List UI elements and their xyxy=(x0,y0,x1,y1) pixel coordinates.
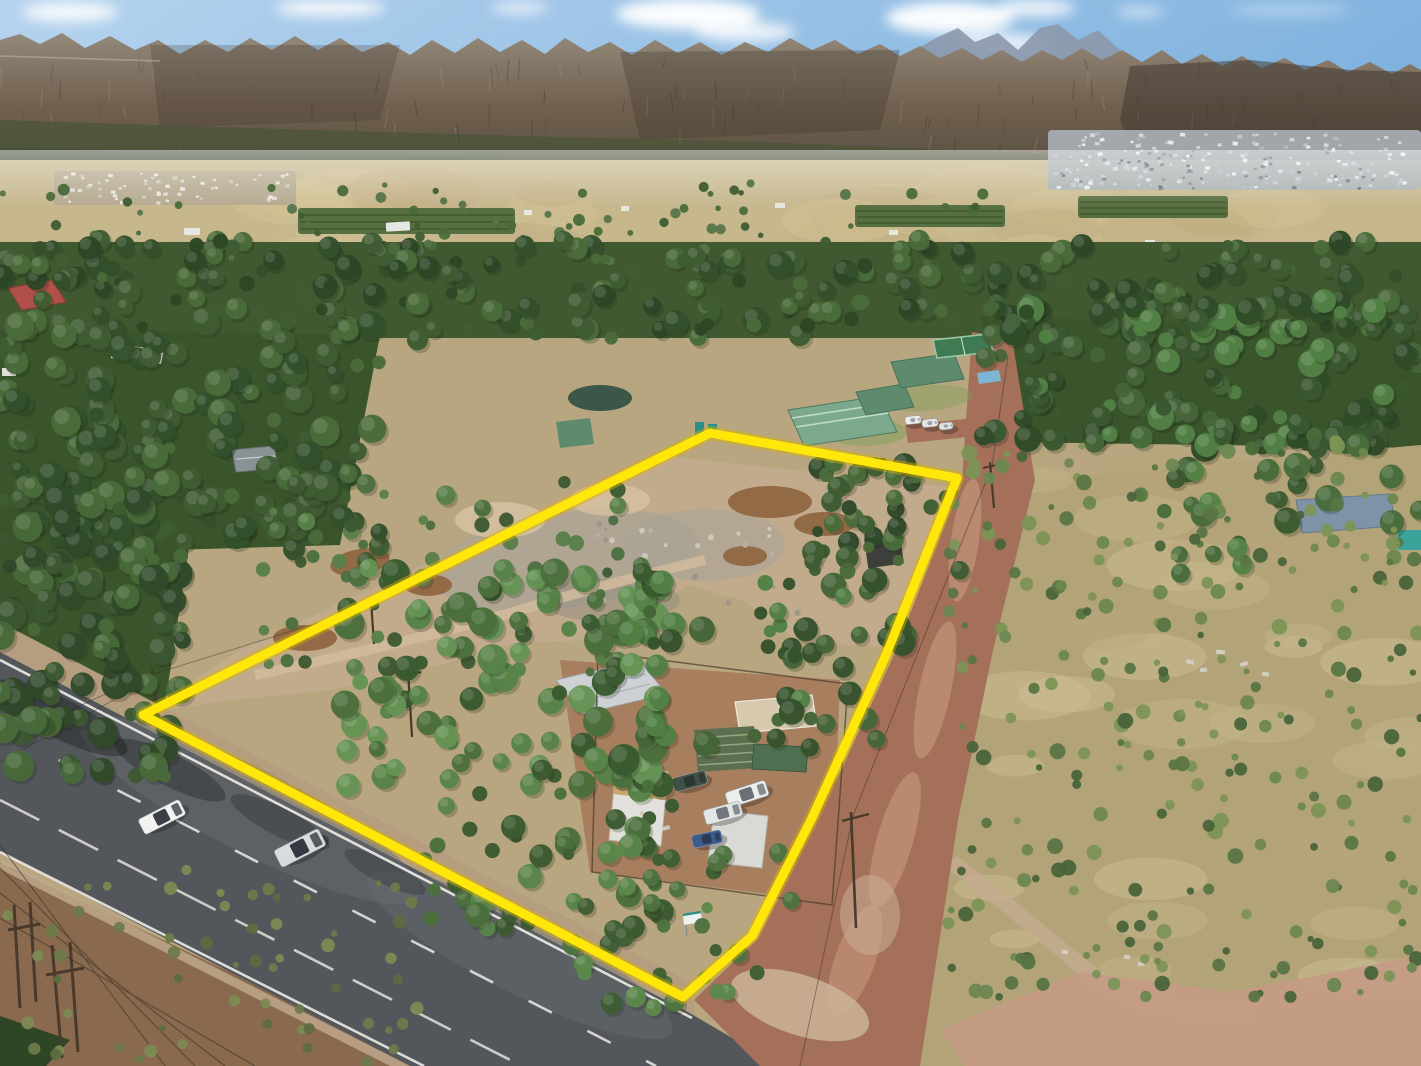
left-dirt-tufts xyxy=(332,984,341,993)
forest-left-road-highlight xyxy=(25,547,36,558)
white-building xyxy=(524,210,532,215)
forest-left-deep-highlight xyxy=(313,418,328,433)
property-central-trees-highlight xyxy=(539,593,550,604)
rubble-row xyxy=(770,552,775,557)
scrub-bushes xyxy=(1344,836,1358,850)
scrub-bushes xyxy=(1309,791,1319,801)
scrub-bushes xyxy=(948,588,959,599)
forest-right-deep-highlight xyxy=(978,349,988,359)
forest-left-deep-highlight xyxy=(289,353,299,363)
left-dirt-tufts xyxy=(21,1016,34,1029)
property-upper-strip-highlight xyxy=(476,501,485,510)
scrub-bushes xyxy=(1076,475,1092,491)
cloud xyxy=(1230,3,1350,17)
scrub-bushes xyxy=(1228,848,1244,864)
left-dirt-tufts xyxy=(45,924,59,938)
valley-trees xyxy=(137,210,143,216)
forest-left-deep-highlight xyxy=(141,348,152,359)
scrub-bushes xyxy=(1345,521,1356,532)
left-dirt-tufts xyxy=(250,955,262,967)
forest-right-deep-highlight xyxy=(1242,416,1251,425)
scrub-bushes xyxy=(1295,766,1308,779)
forest-right-deep-highlight xyxy=(1400,305,1409,314)
scrub-bushes xyxy=(1117,921,1129,933)
forest-band xyxy=(851,295,867,311)
scrub-bushes xyxy=(1154,660,1160,666)
junction-gravel xyxy=(840,875,900,955)
scrub-bushes xyxy=(1175,756,1190,771)
scrub-bushes xyxy=(1396,748,1406,758)
forest-left-deep-highlight xyxy=(274,331,286,343)
scrub-bushes xyxy=(1209,729,1218,738)
property-northeast-trees-highlight xyxy=(887,491,895,499)
forest-right-deep-highlight xyxy=(1338,319,1347,328)
property-central-trees-highlight xyxy=(361,560,370,569)
forest-left-deep-highlight xyxy=(144,444,157,457)
property-northeast-trees-highlight xyxy=(859,517,868,526)
property-east-trees xyxy=(783,578,795,590)
scrub-bushes xyxy=(1048,504,1054,510)
forest-band-highlight xyxy=(1357,233,1367,243)
roadside-south-trees-highlight xyxy=(616,928,626,938)
property-east-trees-highlight xyxy=(796,619,808,631)
scrub-bushes xyxy=(1128,883,1142,897)
property-upper-strip xyxy=(298,655,311,668)
forest-right-deep-highlight xyxy=(1375,386,1386,397)
forest-left-deep xyxy=(372,356,386,370)
forest-band-highlight xyxy=(901,300,912,311)
forest-band xyxy=(461,324,474,337)
scrub-bushes xyxy=(1407,963,1417,973)
property-east-trees-highlight xyxy=(648,656,659,667)
forest-left-road-highlight xyxy=(142,755,156,769)
valley-haze xyxy=(0,150,1421,208)
scrub-bushes xyxy=(1047,838,1063,854)
property-upper-strip xyxy=(295,556,307,568)
property-east-trees xyxy=(787,649,802,664)
forest-band-highlight xyxy=(118,300,126,308)
scrub-bushes xyxy=(967,741,979,753)
cloud xyxy=(1116,6,1164,18)
scrub-bushes xyxy=(947,963,956,972)
valley-trees xyxy=(415,232,425,242)
rubble-row xyxy=(664,543,668,547)
mountain-shadow-left xyxy=(150,45,400,128)
soil-heap xyxy=(728,486,812,518)
left-dirt-tufts xyxy=(73,906,84,917)
property-upper-strip-highlight xyxy=(380,658,390,668)
right-pine-cluster xyxy=(1157,504,1172,519)
forest-left-deep-highlight xyxy=(194,309,208,323)
scrub-bushes xyxy=(1382,580,1388,586)
left-dirt-tufts xyxy=(303,1043,313,1053)
scrub-bushes xyxy=(1157,522,1165,530)
valley-trees xyxy=(0,190,6,196)
forest-band-highlight xyxy=(1156,283,1167,294)
forest-left-deep-highlight xyxy=(12,491,21,500)
rubble-row xyxy=(603,537,608,542)
forest-right-deep-highlight xyxy=(1197,435,1209,447)
forest-band-highlight xyxy=(886,272,897,283)
valley-trees xyxy=(680,204,689,213)
scrub-bushes xyxy=(1290,925,1303,938)
forest-left-road-highlight xyxy=(154,612,166,624)
rubble-row xyxy=(604,528,607,531)
forest-left-deep-highlight xyxy=(5,390,17,402)
white-building xyxy=(889,230,898,235)
right-pine-cluster-highlight xyxy=(1207,547,1215,555)
roadside-south-trees-highlight xyxy=(645,895,654,904)
left-dirt-tufts xyxy=(200,936,213,949)
forest-left-deep-highlight xyxy=(283,503,296,516)
property-northeast-trees xyxy=(842,500,857,515)
property-south-trees-highlight xyxy=(440,798,449,807)
scrub-bushes xyxy=(1125,937,1135,947)
valley-trees xyxy=(51,220,61,230)
scrub-bushes xyxy=(972,588,978,594)
forest-left-deep xyxy=(224,488,239,503)
forest-right-deep-highlight xyxy=(1173,303,1182,312)
property-south-trees-highlight xyxy=(532,846,544,858)
forest-right-deep-highlight xyxy=(1315,291,1327,303)
town-buildings xyxy=(1398,141,1402,144)
property-south-trees-highlight xyxy=(557,837,566,846)
forest-band-highlight xyxy=(989,263,1001,275)
forest-left-road-highlight xyxy=(122,673,133,684)
scrub-bushes xyxy=(1348,820,1355,827)
scrub-bushes xyxy=(957,661,969,673)
forest-right-deep-highlight xyxy=(1092,407,1102,417)
property-northeast-trees-highlight xyxy=(804,542,816,554)
left-dirt-tufts xyxy=(262,1019,272,1029)
roadside-south-trees xyxy=(710,984,726,1000)
scrub-bushes xyxy=(1092,944,1100,952)
left-dirt-tufts xyxy=(63,1009,72,1018)
scrub-bushes xyxy=(1289,566,1297,574)
property-upper-strip xyxy=(568,535,584,551)
scrub-bushes xyxy=(1312,938,1323,949)
forest-band-highlight xyxy=(556,232,566,242)
forest-band xyxy=(54,252,69,267)
forest-left-deep-highlight xyxy=(267,374,277,384)
property-east-trees xyxy=(754,607,767,620)
forest-right-deep-highlight xyxy=(976,428,985,437)
forest-right-deep-highlight xyxy=(1189,311,1200,322)
scrub-bushes xyxy=(1331,662,1346,677)
scrub-bushes xyxy=(1269,771,1281,783)
scrub-bushes xyxy=(1357,781,1364,788)
forest-left-deep-highlight xyxy=(196,395,206,405)
left-dirt-tufts xyxy=(385,953,396,964)
forest-left-deep-highlight xyxy=(94,426,106,438)
left-dirt-tufts xyxy=(32,950,43,961)
scrub-bushes xyxy=(1187,887,1194,894)
forest-left-deep-highlight xyxy=(333,508,345,520)
property-central-trees-highlight xyxy=(512,644,522,654)
forest-right-deep xyxy=(1090,347,1105,362)
scrub-bushes xyxy=(958,907,973,922)
forest-band-highlight xyxy=(795,291,804,300)
property-central-trees-highlight xyxy=(543,733,552,742)
scrub-bushes xyxy=(1124,537,1133,546)
forest-band-highlight xyxy=(568,294,580,306)
scrub-bushes xyxy=(968,655,977,664)
forest-left-road-highlight xyxy=(78,571,92,585)
roadside-south-trees-highlight xyxy=(671,882,679,890)
scrub-bushes xyxy=(1078,747,1090,759)
forest-band-highlight xyxy=(408,294,419,305)
property-east-trees-highlight xyxy=(864,569,877,582)
forest-band xyxy=(446,287,458,299)
scrub-bushes xyxy=(1259,720,1271,732)
scrub-bushes xyxy=(1027,750,1035,758)
scrub-bushes xyxy=(1403,815,1412,824)
forest-band-highlight xyxy=(1226,264,1237,275)
property-central-trees-highlight xyxy=(339,741,350,752)
property-northeast-trees-highlight xyxy=(823,493,833,503)
rubble-row xyxy=(692,574,698,580)
right-pine-cluster-highlight xyxy=(1201,494,1212,505)
property-south-trees xyxy=(554,787,566,799)
forest-left-road-highlight xyxy=(127,490,140,503)
forest-band-highlight xyxy=(610,273,619,282)
forest-band-highlight xyxy=(262,321,273,332)
forest-right-deep-highlight xyxy=(1165,391,1174,400)
scrub-bushes xyxy=(1270,971,1278,979)
property-upper-strip xyxy=(281,654,294,667)
forest-left-deep-highlight xyxy=(314,475,328,489)
scrub-bushes xyxy=(1308,437,1320,449)
scrub-bushes xyxy=(1241,909,1251,919)
scrub-bushes xyxy=(1112,577,1123,588)
forest-band-highlight xyxy=(654,322,663,331)
roadside-south-trees-highlight xyxy=(579,899,587,907)
scrub-bushes xyxy=(1094,807,1108,821)
scrub-bushes xyxy=(969,984,983,998)
forest-left-deep-highlight xyxy=(317,344,329,356)
forest-band-highlight xyxy=(894,242,903,251)
scrub-bushes xyxy=(1310,843,1318,851)
forest-left-road-highlight xyxy=(63,763,74,774)
valley-trees xyxy=(729,185,739,195)
forest-band xyxy=(97,272,108,283)
roadside-south-trees-highlight xyxy=(710,854,719,863)
property-east-trees-highlight xyxy=(651,689,661,699)
property-east-trees-highlight xyxy=(781,701,794,714)
forest-right-deep xyxy=(1175,336,1188,349)
property-south-trees xyxy=(428,883,441,896)
forest-right-deep-highlight xyxy=(984,326,995,337)
property-east-trees-highlight xyxy=(663,614,675,626)
forest-left-deep-highlight xyxy=(269,433,278,442)
scrub-bushes xyxy=(1386,559,1393,566)
property-central-trees-highlight xyxy=(374,766,387,779)
property-central-trees-highlight xyxy=(495,561,505,571)
left-dirt-tufts xyxy=(261,998,271,1008)
property-central-trees-highlight xyxy=(620,588,631,599)
scrub-bushes xyxy=(1195,612,1208,625)
forest-left-deep-highlight xyxy=(46,358,57,369)
forest-band-highlight xyxy=(1042,252,1053,263)
property-upper-strip-highlight xyxy=(348,660,356,668)
scrub-bushes xyxy=(1387,900,1401,914)
forest-left-deep-highlight xyxy=(372,525,381,534)
scrub-bushes xyxy=(1337,626,1351,640)
town-buildings xyxy=(1273,133,1277,136)
property-upper-strip-highlight xyxy=(270,523,279,532)
scrub-bushes xyxy=(1284,715,1294,725)
scrub-bushes xyxy=(1410,669,1416,675)
property-central-trees-highlight xyxy=(419,713,431,725)
forest-band-highlight xyxy=(666,312,679,325)
forest-band xyxy=(746,318,761,333)
forest-band-highlight xyxy=(1019,265,1031,277)
roadside-south-trees-highlight xyxy=(784,893,793,902)
forest-right-deep-highlight xyxy=(1016,411,1024,419)
forest-left-road-highlight xyxy=(117,586,130,599)
town-buildings xyxy=(1137,138,1141,141)
forest-band xyxy=(213,234,228,249)
property-northeast-trees xyxy=(893,555,904,566)
forest-right-deep-highlight xyxy=(1395,345,1407,357)
town-buildings xyxy=(1303,143,1307,146)
forest-band-highlight xyxy=(389,261,399,271)
forest-band-highlight xyxy=(911,231,921,241)
property-south-trees-highlight xyxy=(599,843,610,854)
forest-left-deep-highlight xyxy=(359,313,373,327)
scrub-bushes xyxy=(1197,632,1204,639)
right-pine-cluster-highlight xyxy=(1187,463,1197,473)
forest-band-highlight xyxy=(1199,266,1211,278)
property-south-trees-highlight xyxy=(621,836,633,848)
forest-left-deep-highlight xyxy=(220,413,233,426)
valley-trees xyxy=(670,208,680,218)
scrub-bushes xyxy=(1140,954,1150,964)
left-dirt-tufts xyxy=(304,1023,315,1034)
forest-left-deep-highlight xyxy=(8,314,23,329)
roadside-south-trees xyxy=(710,944,722,956)
scrub-bushes xyxy=(1140,991,1151,1002)
property-northeast-trees-highlight xyxy=(806,554,815,563)
forest-left-deep-highlight xyxy=(90,327,102,339)
forest-band xyxy=(256,265,268,277)
forest-right-deep-highlight xyxy=(1158,350,1170,362)
forest-left-road-highlight xyxy=(142,567,157,582)
property-upper-strip xyxy=(474,517,489,532)
property-east-trees-highlight xyxy=(818,636,827,645)
scrub-bushes xyxy=(1069,886,1079,896)
forest-right-deep xyxy=(983,302,997,316)
forest-left-road-highlight xyxy=(92,760,105,773)
property-upper-strip xyxy=(608,515,618,525)
forest-band-highlight xyxy=(1089,280,1099,290)
forest-right-deep-highlight xyxy=(1353,312,1361,320)
forest-left-deep-highlight xyxy=(216,440,225,449)
scrub-bushes xyxy=(949,539,960,550)
scrub-bushes xyxy=(1394,644,1407,657)
aerial-photo-canvas xyxy=(0,0,1421,1066)
forest-band-highlight xyxy=(1254,254,1262,262)
scrub-bushes xyxy=(1064,458,1073,467)
forest-band-highlight xyxy=(265,252,275,262)
scrub-bushes xyxy=(986,858,997,869)
scrub-bushes xyxy=(1248,991,1260,1003)
forest-band xyxy=(793,276,808,291)
forest-right-deep xyxy=(1334,306,1347,319)
valley-trees xyxy=(594,227,603,236)
forest-left-deep-highlight xyxy=(152,337,161,346)
left-dirt-tufts xyxy=(393,975,403,985)
forest-band xyxy=(1059,275,1072,288)
forest-left-road-highlight xyxy=(176,633,184,641)
scrub-bushes xyxy=(1153,585,1167,599)
scrub-bushes xyxy=(1298,638,1307,647)
scrub-bushes xyxy=(1277,961,1291,975)
scrub-bushes xyxy=(1045,677,1058,690)
scrub-bushes xyxy=(1177,738,1185,746)
property-central-trees-highlight xyxy=(480,646,495,661)
scrub-bushes xyxy=(976,750,992,766)
scrub-bushes xyxy=(1059,511,1073,525)
forest-left-deep-highlight xyxy=(155,471,169,485)
forest-right-deep-highlight xyxy=(1215,419,1225,429)
property-upper-strip-highlight xyxy=(611,498,619,506)
left-dirt-tufts xyxy=(165,933,175,943)
pond xyxy=(568,385,632,411)
property-south-trees-highlight xyxy=(600,871,610,881)
forest-left-road-highlight xyxy=(38,591,49,602)
scrub-bushes xyxy=(1360,553,1369,562)
property-central-trees-highlight xyxy=(449,594,464,609)
left-dirt-tufts xyxy=(331,930,337,936)
valley-trees xyxy=(747,179,755,187)
forest-left-deep-highlight xyxy=(198,495,208,505)
forest-left-deep-highlight xyxy=(207,372,220,385)
roadside-south-trees xyxy=(613,846,624,857)
valley-trees xyxy=(345,247,351,253)
town-buildings xyxy=(1100,138,1105,142)
valley-trees xyxy=(706,223,716,233)
property-central-trees-highlight xyxy=(622,655,634,667)
forest-left-deep-highlight xyxy=(279,468,291,480)
property-central-trees-highlight xyxy=(513,735,523,745)
scrub-bushes xyxy=(1350,586,1357,593)
forest-right-deep-highlight xyxy=(1146,300,1156,310)
forest-band-highlight xyxy=(116,237,126,247)
forest-band-highlight xyxy=(1271,259,1282,270)
forest-left-deep-highlight xyxy=(79,431,94,446)
scrub-bushes xyxy=(1362,492,1369,499)
town-buildings xyxy=(1260,146,1264,149)
property-south-trees-highlight xyxy=(442,771,452,781)
property-east-trees xyxy=(757,575,773,591)
forest-band xyxy=(239,276,255,292)
forest-right-deep-highlight xyxy=(1312,340,1324,352)
rubble-row xyxy=(596,533,600,537)
forest-right-deep-highlight xyxy=(1177,426,1187,436)
forest-left-road xyxy=(173,549,188,564)
left-dirt-tufts xyxy=(216,889,224,897)
scrub-bushes xyxy=(1005,976,1019,990)
scrub-bushes xyxy=(1320,524,1333,537)
rubble-row xyxy=(726,600,731,605)
roadside-south-trees-highlight xyxy=(606,922,616,932)
scrub-bushes xyxy=(1240,557,1250,567)
scrub-bushes xyxy=(1234,763,1247,776)
forest-left-road-highlight xyxy=(80,493,94,507)
valley-trees xyxy=(409,205,418,214)
roadside-south-trees xyxy=(750,965,765,980)
